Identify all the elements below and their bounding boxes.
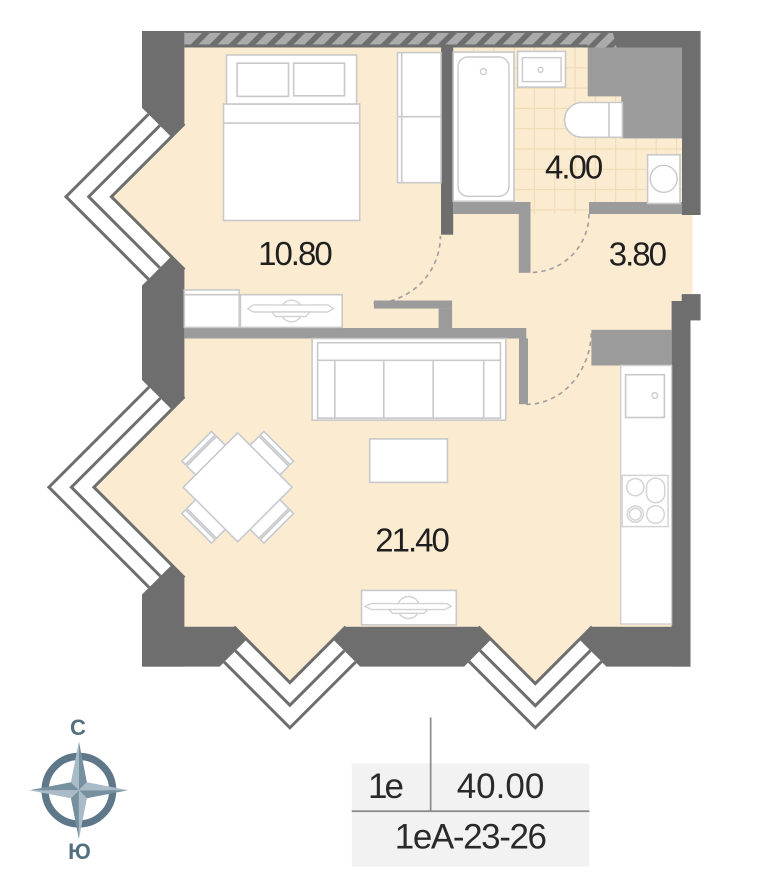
svg-text:1е: 1е: [368, 767, 402, 806]
svg-text:10.80: 10.80: [258, 235, 332, 272]
svg-text:1еА-23-26: 1еА-23-26: [395, 817, 546, 856]
svg-text:4.00: 4.00: [545, 148, 603, 185]
svg-text:С: С: [70, 715, 86, 740]
svg-text:3.80: 3.80: [609, 235, 667, 272]
svg-text:21.40: 21.40: [375, 522, 449, 559]
svg-text:40.00: 40.00: [457, 767, 545, 806]
svg-text:Ю: Ю: [68, 839, 91, 864]
